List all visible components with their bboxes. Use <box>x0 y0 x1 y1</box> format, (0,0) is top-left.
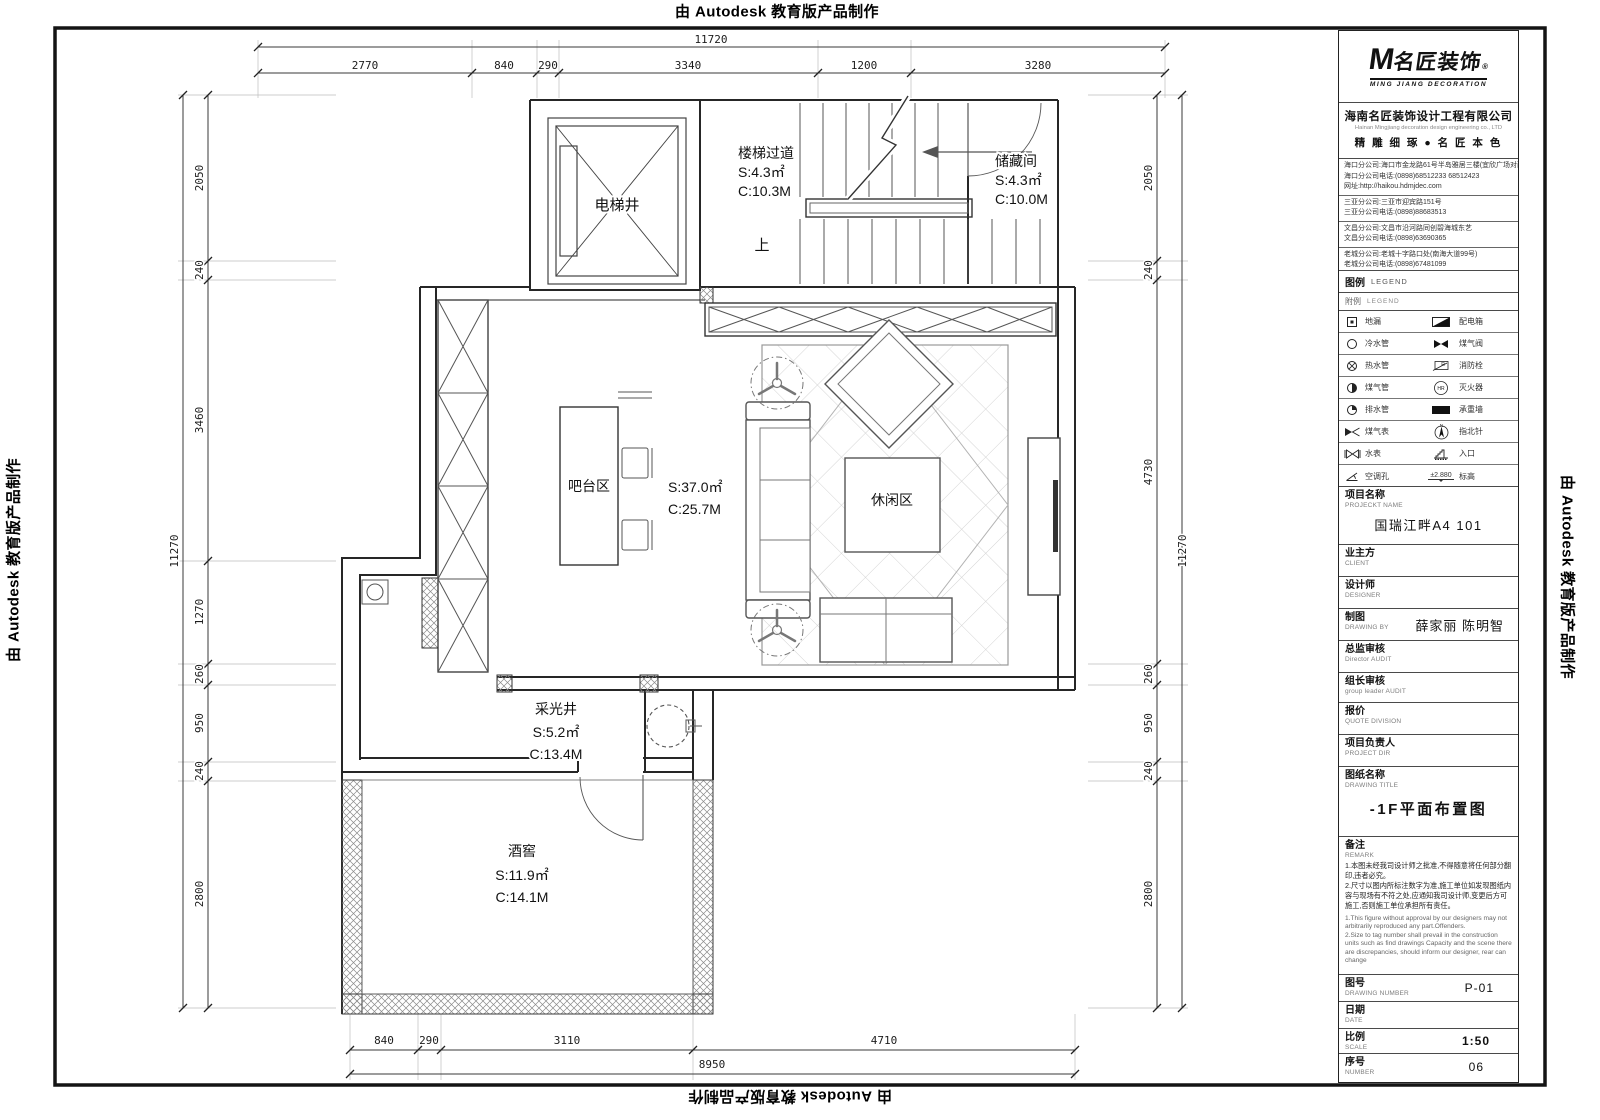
field-leader-audit: 组长审核 group leader AUDIT <box>1339 673 1518 703</box>
legend-row: 热水管 R 消防栓 <box>1339 355 1518 377</box>
logo-brand: 名匠装饰 <box>1391 46 1483 76</box>
field-client: 业主方 CLIENT <box>1339 545 1518 577</box>
bar-stools <box>618 392 652 550</box>
fire-hydrant-icon: R <box>1423 359 1459 372</box>
legend-subtitle-zh: 附例 <box>1345 296 1361 307</box>
field-label: 业主方 <box>1345 548 1512 560</box>
load-bearing-wall-icon <box>1423 405 1459 415</box>
legend-row: 水表 入口 <box>1339 443 1518 465</box>
legend-label: 煤气阀 <box>1459 338 1518 349</box>
logo-subtitle: MING JIANG DECORATION <box>1370 78 1487 88</box>
room-perimeter-cellar: C:14.1M <box>496 889 549 905</box>
room-perimeter-main: C:25.7M <box>668 501 721 517</box>
branch-group: 海口分公司:海口市金龙路61号半岛雅居三楼(宜欣广场对面) 海口分公司电话:(0… <box>1339 159 1518 196</box>
field-number: 序号 NUMBER 06 <box>1339 1054 1518 1080</box>
branch-line: 三亚分公司电话:(0898)88683513 <box>1344 208 1513 219</box>
dim-label: 260 <box>1142 664 1155 684</box>
field-label: 组长审核 <box>1345 676 1512 688</box>
dim-label: 290 <box>419 1034 439 1047</box>
logo-m-icon: M <box>1367 45 1396 75</box>
field-label-en: Director AUDIT <box>1345 656 1512 663</box>
field-scale: 比例 SCALE 1:50 <box>1339 1029 1518 1054</box>
legend-subtitle: 附例 LEGEND <box>1339 293 1518 311</box>
field-label-en: CLIENT <box>1345 560 1512 567</box>
legend-title-zh: 图例 <box>1345 274 1365 289</box>
legend-label: 空调孔 <box>1365 471 1423 482</box>
legend-title: 图例 LEGEND <box>1339 271 1518 293</box>
remark-note-zh: 2.尺寸以图内所标注数字为准,施工单位如发现图纸内容与现场有不符之处,应通知我司… <box>1345 881 1512 910</box>
tv <box>1053 480 1058 552</box>
branch-line: 三亚分公司:三亚市迎宾路151号 <box>1344 198 1513 209</box>
drawing-title-value: -1F平面布置图 <box>1345 798 1512 819</box>
field-label-en: DESIGNER <box>1345 592 1512 599</box>
room-perimeter-storage: C:10.0M <box>995 191 1048 207</box>
field-label: 备注 <box>1345 840 1512 852</box>
legend-row: 排水管 承重墙 <box>1339 399 1518 421</box>
dim-label: 840 <box>494 59 514 72</box>
water-heater <box>362 580 388 604</box>
room-label-bar: 吧台区 <box>568 478 610 494</box>
legend-row: 冷水管 煤气阀 <box>1339 333 1518 355</box>
legend-label: 灭火器 <box>1459 382 1518 393</box>
tv-cabinet <box>1028 438 1060 595</box>
dim-label: 260 <box>193 664 206 684</box>
remark-note-en: 1.This figure without approval by our de… <box>1345 915 1512 932</box>
gas-valve-icon <box>1423 339 1459 349</box>
legend-table: 地漏 配电箱 冷水管 煤气阀 热水管 R 消防栓 煤气管 HR 灭火器 排水管 … <box>1339 311 1518 487</box>
branch-line: 老城分公司电话:(0898)67481099 <box>1344 260 1513 271</box>
dim-label: 3110 <box>554 1034 581 1047</box>
room-label-leisure: 休闲区 <box>871 492 913 508</box>
field-label: 总监审核 <box>1345 644 1512 656</box>
entrance-icon <box>1423 447 1459 460</box>
field-label: 报价 <box>1345 706 1512 718</box>
dim-top-overall: 11720 <box>694 33 727 46</box>
field-label: 项目名称 <box>1345 490 1512 502</box>
dim-label: 3340 <box>675 59 702 72</box>
field-label: 图纸名称 <box>1345 770 1512 782</box>
room-label-lightwell: 采光井 <box>535 701 577 717</box>
dim-label: 2770 <box>352 59 379 72</box>
branch-line: 海口分公司:海口市金龙路61号半岛雅居三楼(宜欣广场对面) <box>1344 161 1513 172</box>
branch-group: 三亚分公司:三亚市迎宾路151号 三亚分公司电话:(0898)88683513 <box>1339 196 1518 222</box>
legend-label: 冷水管 <box>1365 338 1423 349</box>
dim-label: 950 <box>1142 713 1155 733</box>
room-label-cellar: 酒窖 <box>508 843 536 859</box>
field-label-en: PROJECKT NAME <box>1345 502 1512 509</box>
legend-title-en: LEGEND <box>1371 277 1408 286</box>
legend-label: 承重墙 <box>1459 404 1518 415</box>
break-line <box>848 96 908 199</box>
dim-label: 290 <box>538 59 558 72</box>
dim-left-overall: 11270 <box>168 534 181 567</box>
legend-label: 消防栓 <box>1459 360 1518 371</box>
cad-drawing-sheet: { "stamp": { "text": "由 Autodesk 教育版产品制作… <box>0 0 1600 1120</box>
company-name: 海南名匠装饰设计工程有限公司 <box>1339 108 1518 124</box>
field-drawing-title: 图纸名称 DRAWING TITLE -1F平面布置图 <box>1339 767 1518 837</box>
legend-label: 热水管 <box>1365 360 1423 371</box>
branch-line: 网址:http://haikou.hdmjdec.com <box>1344 182 1513 193</box>
number-value: 06 <box>1469 1060 1484 1074</box>
legend-label: 水表 <box>1365 448 1423 459</box>
branch-group: 文昌分公司:文昌市沿河路同创碧海城东艺 文昌分公司电话:(0898)636903… <box>1339 222 1518 248</box>
legend-row: 煤气表 N 指北针 <box>1339 421 1518 443</box>
elevation-mark-icon: ±2.880 <box>1423 472 1459 480</box>
legend-subtitle-en: LEGEND <box>1367 298 1400 305</box>
dim-label: 2800 <box>193 881 206 908</box>
title-block: M 名匠装饰 ® MING JIANG DECORATION 海南名匠装饰设计工… <box>1338 30 1519 1083</box>
fire-extinguisher-icon: HR <box>1423 380 1459 396</box>
field-quote: 报价 QUOTE DIVISION <box>1339 703 1518 735</box>
legend-row: 地漏 配电箱 <box>1339 311 1518 333</box>
field-date: 日期 DATE <box>1339 1002 1518 1029</box>
stair-up-label: 上 <box>754 237 769 254</box>
water-meter-icon <box>1339 448 1365 460</box>
left-closet <box>438 300 488 672</box>
room-label-elevator: 电梯井 <box>594 197 639 214</box>
field-label: 设计师 <box>1345 580 1512 592</box>
legend-label: 配电箱 <box>1459 316 1518 327</box>
field-project-name: 项目名称 PROJECKT NAME 国瑞江畔A4 101 <box>1339 487 1518 545</box>
svg-text:N: N <box>1439 423 1442 428</box>
gas-pipe-icon <box>1339 382 1365 394</box>
logo-registered-mark: ® <box>1481 62 1488 71</box>
legend-label: 地漏 <box>1365 316 1423 327</box>
cold-water-pipe-icon <box>1339 338 1365 350</box>
scale-value: 1:50 <box>1462 1034 1490 1048</box>
dim-label: 2050 <box>1142 165 1155 192</box>
left-sofa <box>746 402 810 618</box>
room-area-cellar: S:11.9㎡ <box>495 867 548 883</box>
room-area-main: S:37.0㎡ <box>668 479 722 495</box>
branch-line: 老城分公司:老城十字路口处(南海大道99号) <box>1344 250 1513 261</box>
field-label-en: NUMBER <box>1345 1069 1512 1076</box>
field-label-en: group leader AUDIT <box>1345 688 1512 695</box>
dim-label: 3460 <box>193 407 206 434</box>
field-label: 项目负责人 <box>1345 738 1512 750</box>
room-area-stair: S:4.3㎡ <box>738 164 785 180</box>
svg-text:HR: HR <box>1437 386 1445 392</box>
field-label-en: DATE <box>1345 1017 1512 1024</box>
room-label-storage: 储藏间 <box>995 153 1037 169</box>
remark-note-en: 2.Size to tag number shall prevail in th… <box>1345 932 1512 966</box>
field-director-audit: 总监审核 Director AUDIT <box>1339 641 1518 673</box>
north-arrow-icon: N <box>1423 423 1459 440</box>
field-drawing-by: 制图 DRAWING BY 薛家丽 陈明智 <box>1339 609 1518 641</box>
dim-label: 2050 <box>193 165 206 192</box>
legend-label: 标高 <box>1459 471 1518 482</box>
dim-bottom-overall: 8950 <box>699 1058 726 1071</box>
dim-label: 1200 <box>851 59 878 72</box>
dim-label: 2800 <box>1142 881 1155 908</box>
dim-label: 3280 <box>1025 59 1052 72</box>
bottom-sofa <box>820 598 952 662</box>
field-label-en: DRAWING TITLE <box>1345 782 1512 789</box>
branch-line: 文昌分公司:文昌市沿河路同创碧海城东艺 <box>1344 224 1513 235</box>
field-designer: 设计师 DESIGNER <box>1339 577 1518 609</box>
field-drawing-number: 图号 DRAWING NUMBER P-01 <box>1339 975 1518 1002</box>
branch-line: 海口分公司电话:(0898)68512233 68512423 <box>1344 172 1513 183</box>
room-area-lightwell: S:5.2㎡ <box>533 724 580 740</box>
legend-label: 指北针 <box>1459 426 1518 437</box>
gas-meter-icon <box>1339 426 1365 438</box>
room-area-storage: S:4.3㎡ <box>995 172 1042 188</box>
field-label-en: PROJECT DIR <box>1345 750 1512 757</box>
company-slogan: 精 雕 细 琢 ● 名 匠 本 色 <box>1339 135 1518 150</box>
legend-label: 煤气表 <box>1365 426 1423 437</box>
dim-label: 240 <box>1142 260 1155 280</box>
company-info: 海南名匠装饰设计工程有限公司 Hainan Mingjiang decorati… <box>1339 103 1518 159</box>
branch-offices: 海口分公司:海口市金龙路61号半岛雅居三楼(宜欣广场对面) 海口分公司电话:(0… <box>1339 159 1518 271</box>
legend-label: 入口 <box>1459 448 1518 459</box>
project-name-value: 国瑞江畔A4 101 <box>1345 515 1512 534</box>
field-project-dir: 项目负责人 PROJECT DIR <box>1339 735 1518 767</box>
floor-drain-icon <box>1339 316 1365 328</box>
dim-label: 4730 <box>1142 459 1155 486</box>
field-remark: 备注 REMARK 1.本图未经我司设计师之批准,不得随意将任何部分翻印,违者必… <box>1339 837 1518 975</box>
dim-label: 840 <box>374 1034 394 1047</box>
svg-text:R: R <box>1441 362 1445 368</box>
dim-label: 950 <box>193 713 206 733</box>
dim-label: 1270 <box>193 599 206 626</box>
dim-right-overall: 11270 <box>1176 534 1189 567</box>
room-perimeter-stair: C:10.3M <box>738 183 791 199</box>
ac-hole-icon <box>1339 470 1365 482</box>
branch-line: 文昌分公司电话:(0898)63690365 <box>1344 234 1513 245</box>
company-logo: M 名匠装饰 ® MING JIANG DECORATION <box>1339 31 1518 103</box>
dim-label: 240 <box>1142 761 1155 781</box>
legend-row: 煤气管 HR 灭火器 <box>1339 377 1518 399</box>
drain-pipe-icon <box>1339 404 1365 416</box>
room-perimeter-lightwell: C:13.4M <box>530 746 583 762</box>
dim-label: 240 <box>193 761 206 781</box>
cellar-door <box>580 775 643 840</box>
dim-label: 4710 <box>871 1034 898 1047</box>
distribution-box-icon <box>1423 317 1459 327</box>
dim-label: 240 <box>193 260 206 280</box>
field-label: 序号 <box>1345 1057 1512 1069</box>
legend-row: 空调孔 ±2.880 标高 <box>1339 465 1518 487</box>
drawing-by-value: 薛家丽 陈明智 <box>1415 615 1504 634</box>
drawing-number-value: P-01 <box>1465 981 1494 995</box>
branch-group: 老城分公司:老城十字路口处(南海大道99号) 老城分公司电话:(0898)674… <box>1339 248 1518 272</box>
field-label: 日期 <box>1345 1005 1512 1017</box>
company-name-en: Hainan Mingjiang decoration design engin… <box>1339 125 1518 131</box>
legend-label: 煤气管 <box>1365 382 1423 393</box>
room-label-stair: 楼梯过道 <box>738 145 794 161</box>
field-label-en: QUOTE DIVISION <box>1345 718 1512 725</box>
remark-note-zh: 1.本图未经我司设计师之批准,不得随意将任何部分翻印,违者必究。 <box>1345 861 1512 880</box>
hot-water-pipe-icon <box>1339 360 1365 372</box>
field-label-en: REMARK <box>1345 852 1512 859</box>
legend-label: 排水管 <box>1365 404 1423 415</box>
